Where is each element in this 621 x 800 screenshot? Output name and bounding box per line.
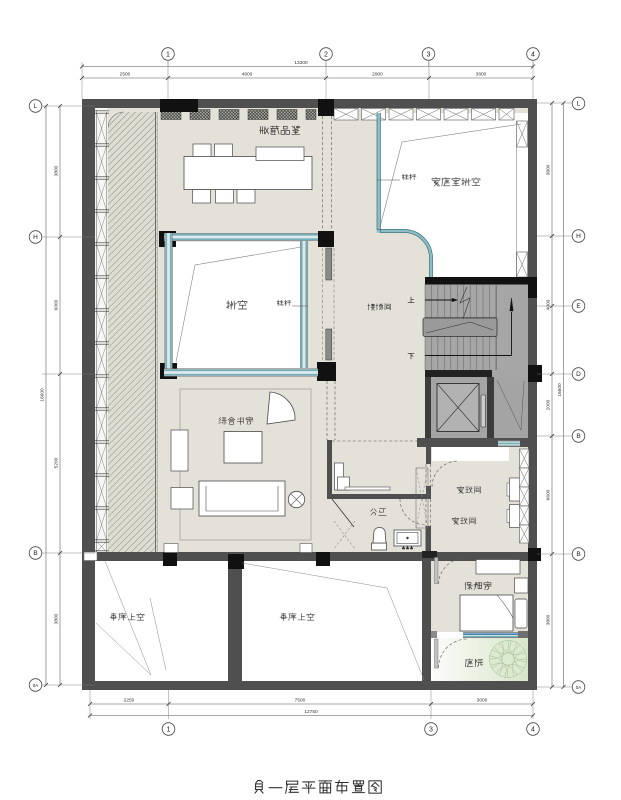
svg-text:3000: 3000 (477, 698, 488, 704)
svg-text:7500: 7500 (295, 698, 306, 704)
svg-text:1: 1 (167, 726, 171, 733)
svg-text:16600: 16600 (40, 388, 46, 402)
svg-text:2: 2 (324, 51, 328, 58)
svg-text:1: 1 (166, 51, 170, 58)
svg-text:16600: 16600 (557, 383, 563, 397)
svg-text:2500: 2500 (120, 72, 131, 78)
svg-text:3800: 3800 (546, 614, 552, 625)
svg-text:3800: 3800 (546, 164, 552, 175)
svg-text:13300: 13300 (294, 60, 308, 66)
svg-text:H: H (33, 234, 38, 241)
svg-text:3: 3 (427, 51, 431, 58)
svg-text:B: B (576, 551, 580, 558)
svg-text:4: 4 (531, 51, 535, 58)
svg-text:2000: 2000 (546, 399, 552, 410)
svg-text:6600: 6600 (546, 489, 552, 500)
svg-text:L: L (577, 101, 581, 108)
svg-text:4000: 4000 (546, 299, 552, 310)
svg-text:B: B (576, 433, 580, 440)
svg-text:12750: 12750 (304, 709, 318, 715)
svg-text:4: 4 (531, 726, 535, 733)
svg-text:0A: 0A (576, 685, 582, 690)
svg-text:6000: 6000 (54, 299, 60, 310)
svg-text:3: 3 (429, 726, 433, 733)
svg-text:2250: 2250 (124, 698, 135, 704)
svg-text:H: H (576, 233, 581, 240)
svg-text:5200: 5200 (54, 457, 60, 468)
svg-text:E: E (576, 303, 581, 310)
svg-text:B: B (33, 550, 37, 557)
svg-text:D: D (576, 371, 581, 378)
svg-text:0A: 0A (33, 683, 39, 688)
svg-text:3800: 3800 (476, 72, 487, 78)
svg-text:2900: 2900 (372, 72, 383, 78)
svg-text:3800: 3800 (54, 165, 60, 176)
svg-text:4600: 4600 (242, 72, 253, 78)
svg-text:L: L (34, 103, 38, 110)
svg-text:3800: 3800 (54, 613, 60, 624)
